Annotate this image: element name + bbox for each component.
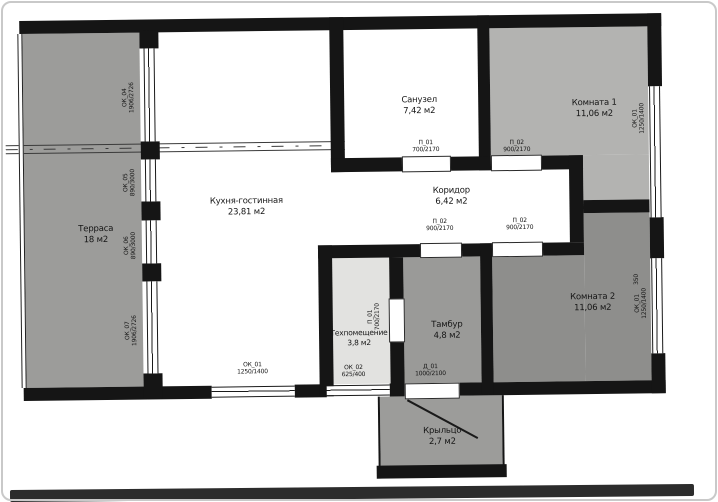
opening-size: 890/3000 xyxy=(131,232,138,259)
wall-room1-room2 xyxy=(583,199,649,213)
door-gap-p02-tambour xyxy=(420,243,462,259)
room-area: 11,06 м2 xyxy=(570,303,615,315)
porch-right-edge xyxy=(502,395,505,466)
window-ok04 xyxy=(144,48,156,141)
opening-size: 1250/1400 xyxy=(237,369,268,376)
room-label-corridor: Коридор 6,42 м2 xyxy=(433,185,471,208)
room1-area xyxy=(489,26,649,156)
room-area: 18 м2 xyxy=(78,235,113,246)
wall-kitchen-bathroom xyxy=(329,17,345,172)
opening-size: 1250/1400 xyxy=(641,288,648,319)
opening-label-p02-room1: П_02 900/2170 xyxy=(503,140,530,154)
opening-label-ok01-right-bottom: ОК_01 1250/1400 xyxy=(635,288,649,319)
opening-label-p02-tambour: П_02 900/2170 xyxy=(426,219,453,233)
wall-right-1 xyxy=(647,13,662,86)
door-gap-p02-room1 xyxy=(491,155,542,172)
wall-bathroom-room1 xyxy=(477,15,491,170)
opening-size: 900/2170 xyxy=(503,147,530,154)
wall-pier-1 xyxy=(139,30,158,48)
opening-label-ok06: ОК_06 890/3000 xyxy=(124,232,138,259)
wall-corridor-right xyxy=(569,155,584,242)
opening-size: 700/2170 xyxy=(412,147,439,154)
room-label-bathroom: Санузел 7,42 м2 xyxy=(401,95,437,118)
wall-bottom-1 xyxy=(24,386,212,401)
room-label-porch: Крыльцо 2,7 м2 xyxy=(423,426,461,449)
bathroom-area xyxy=(343,28,479,158)
opening-label-p01-bathroom: П_01 700/2170 xyxy=(412,140,439,154)
opening-size: 900/2170 xyxy=(426,226,453,233)
room-name: Терраса xyxy=(78,224,113,235)
porch-bottom-edge xyxy=(377,464,507,479)
wall-kitchen-tech xyxy=(318,245,334,396)
window-ok02 xyxy=(327,385,390,397)
wall-pier-5 xyxy=(143,373,162,398)
opening-label-ok05: ОК_05 890/3000 xyxy=(123,169,137,196)
room-name: Комната 2 xyxy=(570,292,615,304)
opening-size: 1250/1400 xyxy=(639,103,646,134)
room-label-tech: Техпомещение 3,8 м2 xyxy=(330,328,387,348)
room-area: 11,06 м2 xyxy=(572,109,617,121)
room-area: 3,8 м2 xyxy=(331,338,388,348)
wall-pier-3 xyxy=(141,201,160,220)
door-gap-p01-tech xyxy=(389,298,406,342)
window-ok06 xyxy=(146,220,158,263)
opening-label-ok01-right-top: ОК_01 1250/1400 xyxy=(632,103,646,134)
window-ok01-bottom xyxy=(212,386,295,398)
opening-label-ok02: ОК_02 625/400 xyxy=(342,365,366,379)
room-label-room1: Комната 1 11,06 м2 xyxy=(572,98,617,121)
wall-right-3 xyxy=(651,353,665,393)
room-label-tambour: Тамбур 4,8 м2 xyxy=(431,320,463,342)
room-area: 4,8 м2 xyxy=(431,331,462,342)
room-area: 2,7 м2 xyxy=(423,437,461,449)
opening-size: 1000/2100 xyxy=(415,371,446,378)
room-name: Коридор xyxy=(433,185,470,197)
room-name: Кухня-гостинная xyxy=(210,196,283,208)
room-area: 6,42 м2 xyxy=(433,197,470,209)
wall-right-2 xyxy=(650,217,664,258)
floor-plan-photo: Терраса 18 м2 Кухня-гостинная 23,81 м2 С… xyxy=(0,0,718,502)
room-area: 23,81 м2 xyxy=(210,207,283,219)
room1-area-ext xyxy=(583,154,650,200)
opening-label-d01: Д_01 1000/2100 xyxy=(415,364,446,378)
opening-label-ok04: ОК_04 1906/2726 xyxy=(122,82,136,113)
opening-label-p01-tech: П_01 700/2170 xyxy=(368,303,382,330)
wall-pier-4 xyxy=(142,263,161,281)
room-label-kitchen: Кухня-гостинная 23,81 м2 xyxy=(210,196,283,219)
door-gap-d01-entrance xyxy=(405,383,460,400)
window-ok05 xyxy=(145,159,157,201)
room-name: Санузел xyxy=(401,95,437,106)
room-label-room2: Комната 2 11,06 м2 xyxy=(570,292,615,315)
room-area: 7,42 м2 xyxy=(401,106,437,117)
room-name: Крыльцо xyxy=(423,426,461,438)
window-ok07 xyxy=(146,281,158,373)
room-label-terrace: Терраса 18 м2 xyxy=(78,224,113,247)
room-name: Тамбур xyxy=(431,320,462,331)
door-gap-p02-room2 xyxy=(492,242,543,258)
wall-pier-2 xyxy=(141,141,160,159)
opening-size: 1906/2726 xyxy=(132,315,139,346)
dimension-350: 350 xyxy=(634,274,641,285)
window-ok01-right-top xyxy=(649,86,662,217)
opening-label-ok01-bottom: ОК_01 1250/1400 xyxy=(237,362,268,376)
floor-plan: Терраса 18 м2 Кухня-гостинная 23,81 м2 С… xyxy=(0,0,703,502)
door-gap-p01-bathroom xyxy=(402,156,451,173)
room2-area xyxy=(492,255,586,382)
window-ok01-right-bottom xyxy=(651,258,663,353)
wall-tambour-room2 xyxy=(480,243,494,394)
opening-size: 890/3000 xyxy=(130,169,137,196)
room-name: Комната 1 xyxy=(572,98,617,110)
opening-size: 700/2170 xyxy=(375,303,382,330)
opening-size: 1906/2726 xyxy=(129,82,136,113)
opening-label-p02-room2: П_02 900/2170 xyxy=(506,218,533,232)
opening-label-ok07: ОК_07 1906/2726 xyxy=(125,315,139,346)
opening-size: 625/400 xyxy=(342,372,366,379)
opening-size: 900/2170 xyxy=(506,225,533,232)
